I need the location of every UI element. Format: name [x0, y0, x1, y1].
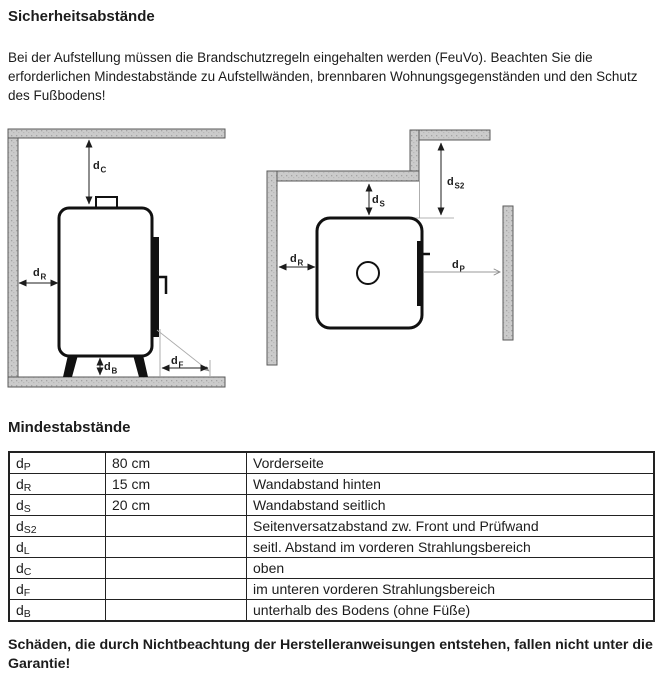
description-cell: seitl. Abstand im vorderen Strahlungsber… [247, 537, 655, 558]
table-row: dS 20 cm Wandabstand seitlich [9, 495, 654, 516]
svg-text:S2: S2 [455, 182, 465, 191]
table-row: dR 15 cm Wandabstand hinten [9, 474, 654, 495]
description-cell: Wandabstand seitlich [247, 495, 655, 516]
value-cell [106, 600, 247, 622]
svg-text:P: P [460, 265, 466, 274]
rear-wall-top [267, 171, 419, 181]
section-title: Mindestabstände [8, 419, 661, 436]
flue-outlet-circle [357, 262, 379, 284]
symbol-cell: dL [9, 537, 106, 558]
page-title: Sicherheitsabstände [8, 8, 661, 25]
intro-paragraph: Bei der Aufstellung müssen die Brandschu… [8, 48, 659, 105]
value-cell [106, 537, 247, 558]
side-wall-left [267, 171, 277, 365]
svg-text:d: d [171, 355, 178, 367]
symbol-cell: dC [9, 558, 106, 579]
description-cell: oben [247, 558, 655, 579]
value-cell: 20 cm [106, 495, 247, 516]
top-view-diagram: d S d S2 d R d P [267, 130, 513, 365]
svg-text:F: F [179, 361, 184, 370]
floor [8, 377, 225, 387]
table-row: dB unterhalb des Bodens (ohne Füße) [9, 600, 654, 622]
svg-text:d: d [452, 259, 459, 271]
distance-label-dr-side: d R [33, 267, 47, 282]
table-row: dS2 Seitenversatzabstand zw. Front und P… [9, 516, 654, 537]
distance-label-dc: d C [93, 160, 107, 175]
distance-label-ds: d S [372, 194, 386, 209]
description-cell: Vorderseite [247, 452, 655, 474]
warranty-warning: Schäden, die durch Nichtbeachtung der He… [8, 636, 658, 674]
stove-door-top [417, 241, 424, 306]
stove-body-side [59, 208, 152, 356]
offset-wall-connector [410, 130, 419, 172]
flue-stub [96, 197, 117, 208]
side-view-diagram: d C d R d B d F [8, 129, 225, 387]
symbol-cell: dS [9, 495, 106, 516]
door-handle [159, 277, 166, 294]
ceiling [8, 129, 225, 138]
description-cell: Wandabstand hinten [247, 474, 655, 495]
value-cell [106, 579, 247, 600]
symbol-cell: dP [9, 452, 106, 474]
distance-label-db: d B [104, 361, 118, 376]
svg-text:C: C [101, 166, 107, 175]
distance-label-dp: d P [452, 259, 466, 274]
stove-door-side [153, 237, 159, 337]
svg-text:B: B [112, 367, 118, 376]
value-cell: 15 cm [106, 474, 247, 495]
svg-text:d: d [104, 361, 111, 373]
table-row: dP 80 cm Vorderseite [9, 452, 654, 474]
test-wall-front [503, 206, 513, 340]
table-row: dC oben [9, 558, 654, 579]
svg-text:S: S [380, 200, 386, 209]
symbol-cell: dS2 [9, 516, 106, 537]
distance-label-ds2: d S2 [447, 176, 465, 191]
description-cell: unterhalb des Bodens (ohne Füße) [247, 600, 655, 622]
description-cell: Seitenversatzabstand zw. Front und Prüfw… [247, 516, 655, 537]
symbol-cell: dR [9, 474, 106, 495]
table-row: dF im unteren vorderen Strahlungsbereich [9, 579, 654, 600]
distance-label-dr-top: d R [290, 253, 304, 268]
description-cell: im unteren vorderen Strahlungsbereich [247, 579, 655, 600]
value-cell [106, 558, 247, 579]
table-row: dL seitl. Abstand im vorderen Strahlungs… [9, 537, 654, 558]
wall-left [8, 129, 18, 387]
svg-text:R: R [298, 259, 304, 268]
value-cell [106, 516, 247, 537]
stove-leg-left [63, 355, 78, 377]
symbol-cell: dB [9, 600, 106, 622]
offset-wall-top [410, 130, 490, 140]
distances-table: dP 80 cm Vorderseite dR 15 cm Wandabstan… [8, 451, 655, 622]
svg-text:R: R [41, 273, 47, 282]
stove-leg-right [133, 355, 148, 377]
distance-label-df: d F [171, 355, 184, 370]
svg-text:d: d [372, 194, 379, 206]
value-cell: 80 cm [106, 452, 247, 474]
clearance-diagram: d C d R d B d F d [0, 121, 669, 393]
svg-text:d: d [33, 267, 40, 279]
symbol-cell: dF [9, 579, 106, 600]
svg-text:d: d [93, 160, 100, 172]
svg-text:d: d [290, 253, 297, 265]
svg-text:d: d [447, 176, 454, 188]
